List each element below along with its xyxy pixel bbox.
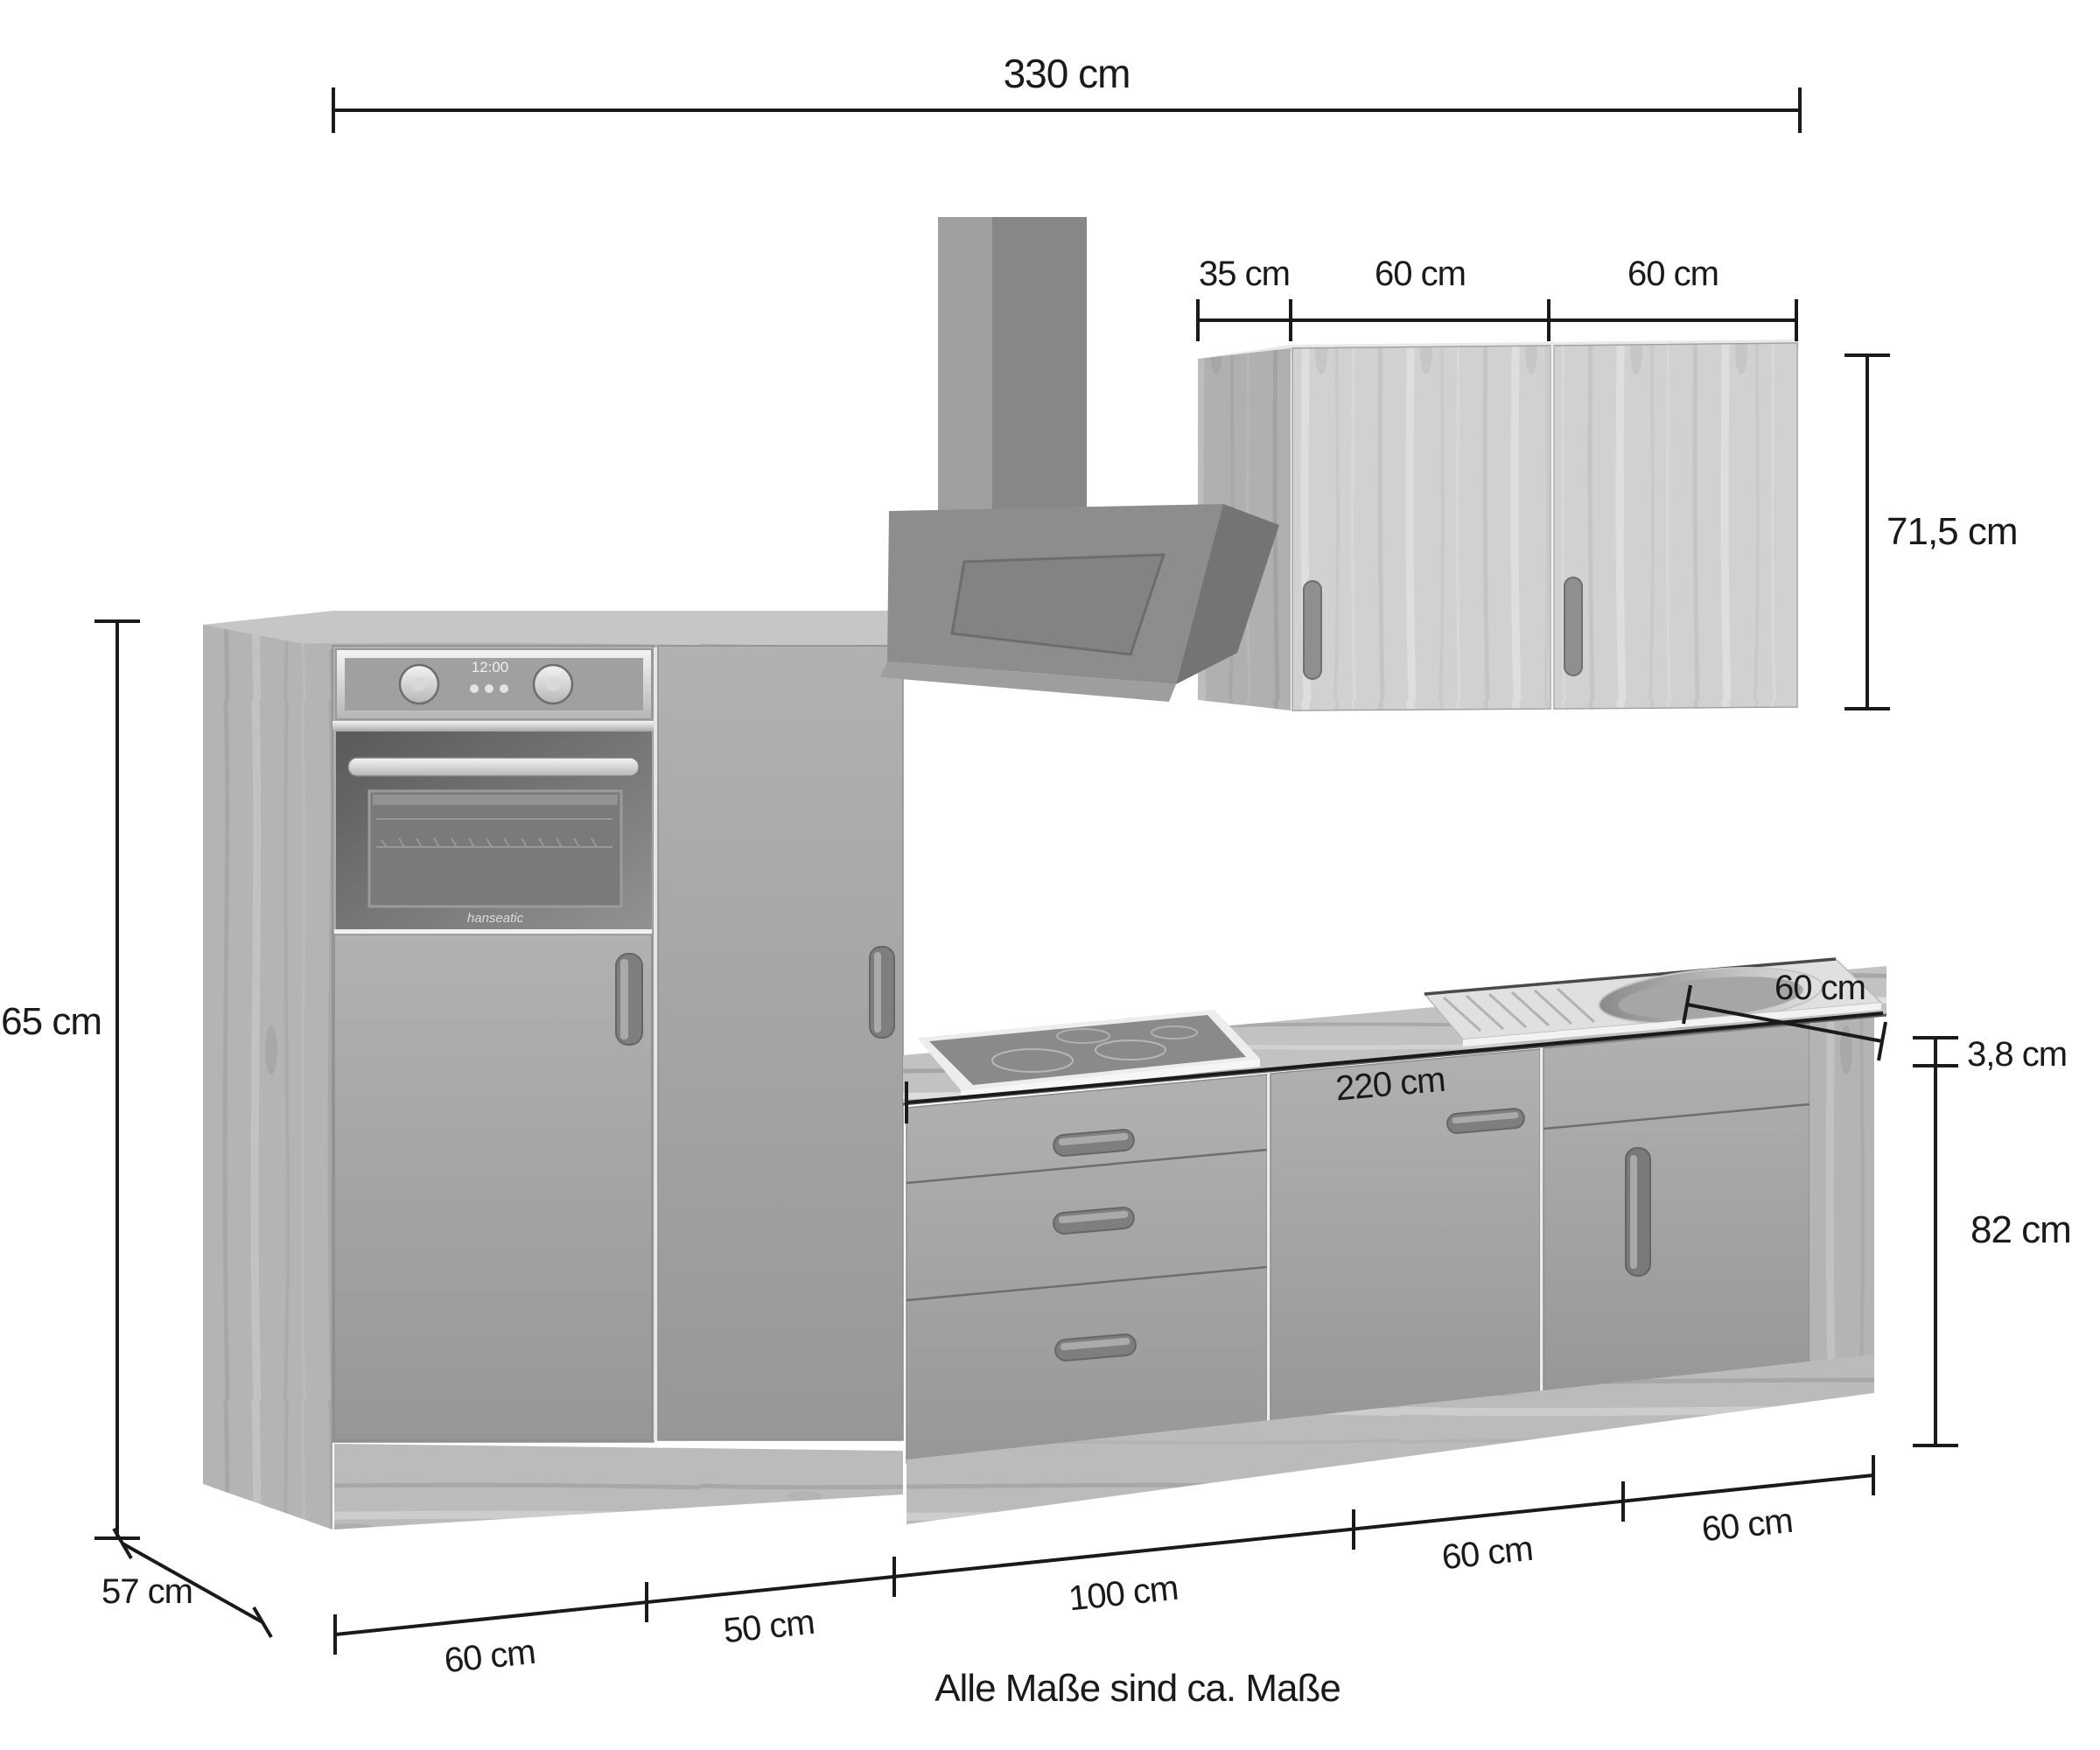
tall-units-top-panel [203, 611, 905, 649]
oven-housing-door-handle [616, 954, 642, 1045]
sink-unit-door-handle [1626, 1148, 1650, 1276]
kitchen-diagram: 12:00 hanseatic [0, 0, 2100, 1750]
wall-door-right-handle [1564, 577, 1582, 675]
dim-label-middle-unit: 60 cm [1440, 1529, 1535, 1578]
dim-label-base-height: 82 cm [1970, 1208, 2071, 1251]
dim-label-wall-door-left: 60 cm [1375, 255, 1466, 293]
hood-chimney [938, 217, 992, 514]
dim-total-height [94, 621, 140, 1538]
dim-label-tall-unit: 50 cm [722, 1603, 816, 1651]
dim-label-depth: 57 cm [101, 1572, 192, 1611]
dim-label-wall-height: 71,5 cm [1886, 510, 2018, 553]
middle-unit-door [1270, 1049, 1540, 1424]
dim-label-drawer-unit: 100 cm [1067, 1569, 1179, 1619]
dim-wall-height [1844, 355, 1890, 709]
wall-door-left-handle [1304, 581, 1321, 679]
dim-label-sink-unit: 60 cm [1700, 1501, 1795, 1550]
kitchen-illustration: 12:00 hanseatic [203, 217, 1886, 1529]
oven-door-window [369, 791, 621, 906]
oven-brand-logo: hanseatic [467, 911, 524, 926]
oven: 12:00 hanseatic [332, 649, 654, 929]
tall-cabinet-door-handle [870, 947, 894, 1038]
oven-housing-lower-door [334, 934, 652, 1440]
dim-label-worktop-depth: 60 cm [1774, 969, 1865, 1007]
dim-wall-cabinets [1198, 299, 1796, 341]
dim-label-wall-door-right: 60 cm [1627, 255, 1718, 293]
dim-label-total-height: 165 cm [0, 1000, 101, 1043]
dim-label-worktop-thickness: 3,8 cm [1967, 1035, 2067, 1074]
tall-cabinet-unit [654, 646, 903, 1440]
dim-label-wall-depth: 35 cm [1199, 255, 1290, 293]
dim-label-total-width: 330 cm [1004, 51, 1130, 96]
sink-unit-front [1543, 1024, 1809, 1393]
base-cabinet-row [903, 959, 1886, 1524]
oven-door-handle [348, 758, 639, 776]
wall-cabinets [1198, 339, 1799, 710]
measurements-note: Alle Maße sind ca. Maße [934, 1667, 1340, 1710]
product-dimension-diagram: 12:00 hanseatic [0, 0, 2100, 1750]
oven-clock-display: 12:00 [472, 659, 509, 675]
tall-cabinet-door [658, 646, 903, 1440]
dim-worktop-thickness [1913, 1038, 1958, 1445]
dim-label-oven-unit: 60 cm [443, 1633, 537, 1681]
